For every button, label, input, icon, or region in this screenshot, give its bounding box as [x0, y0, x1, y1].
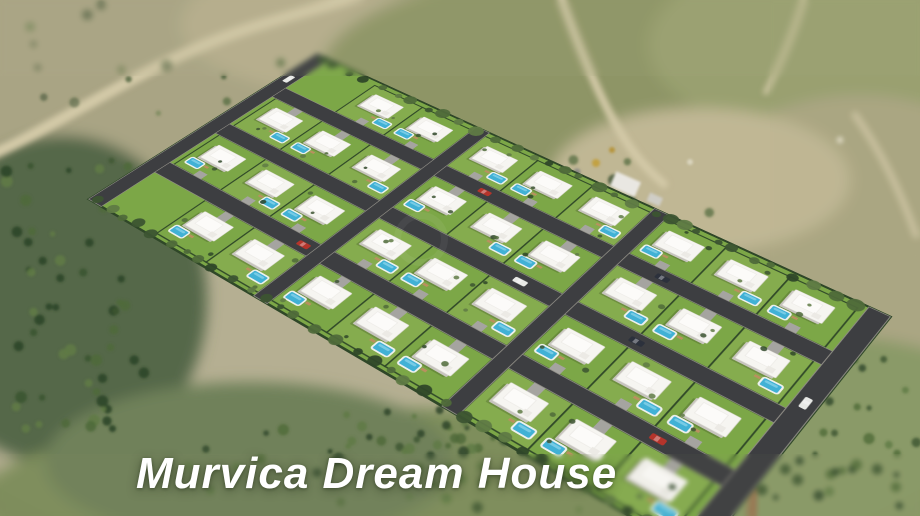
development-site-plan [89, 54, 891, 516]
aerial-render-image: Murvica Dream House [0, 0, 920, 516]
project-title: Murvica Dream House [136, 452, 617, 496]
perspective-wrapper [0, 0, 920, 516]
